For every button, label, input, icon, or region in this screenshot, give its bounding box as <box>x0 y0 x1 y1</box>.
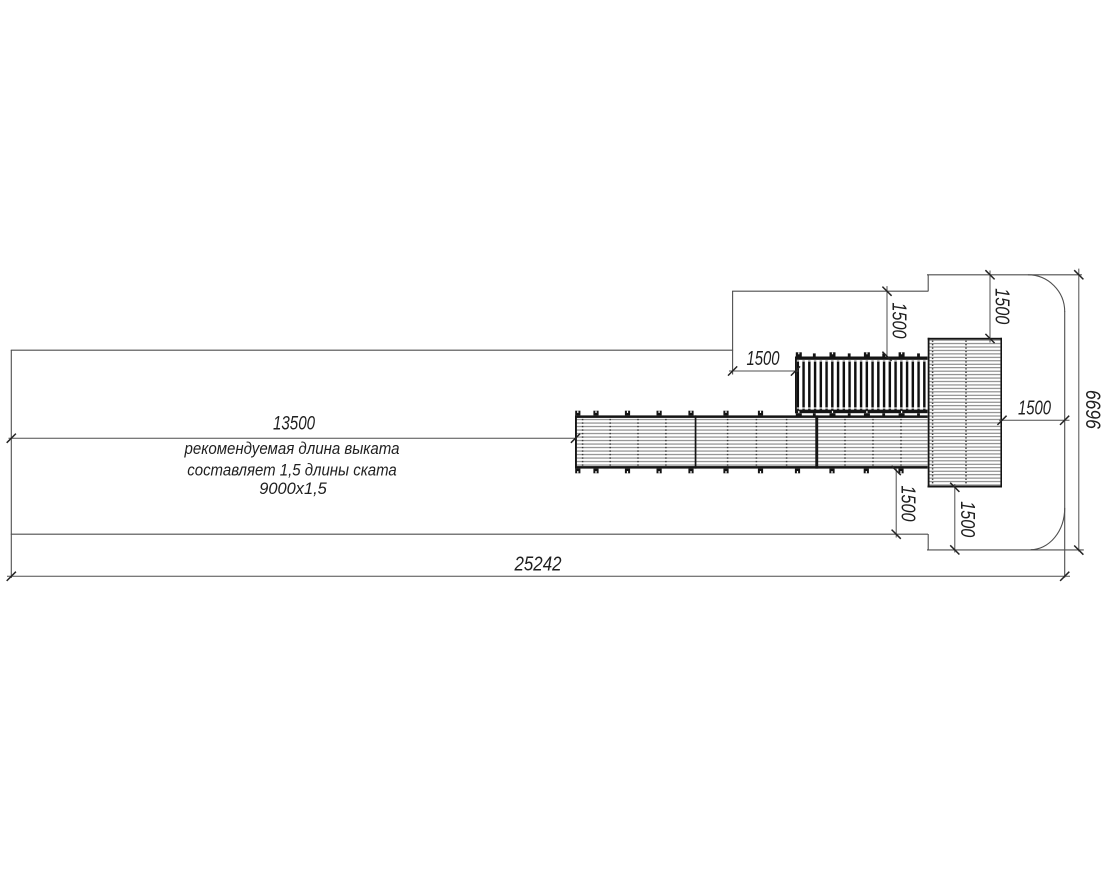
svg-text:1500: 1500 <box>747 348 780 370</box>
svg-text:1500: 1500 <box>897 486 919 522</box>
svg-text:9699: 9699 <box>1081 390 1105 429</box>
svg-text:25242: 25242 <box>514 554 562 576</box>
svg-text:1500: 1500 <box>956 501 978 537</box>
svg-text:1500: 1500 <box>1018 398 1051 420</box>
svg-text:рекомендуемая длина выката: рекомендуемая длина выката <box>184 439 400 458</box>
svg-text:1500: 1500 <box>888 303 910 339</box>
svg-text:9000х1,5: 9000х1,5 <box>259 479 327 498</box>
svg-text:составляет 1,5 длины ската: составляет 1,5 длины ската <box>187 461 397 480</box>
svg-text:13500: 13500 <box>273 414 315 435</box>
svg-text:1500: 1500 <box>991 288 1013 324</box>
